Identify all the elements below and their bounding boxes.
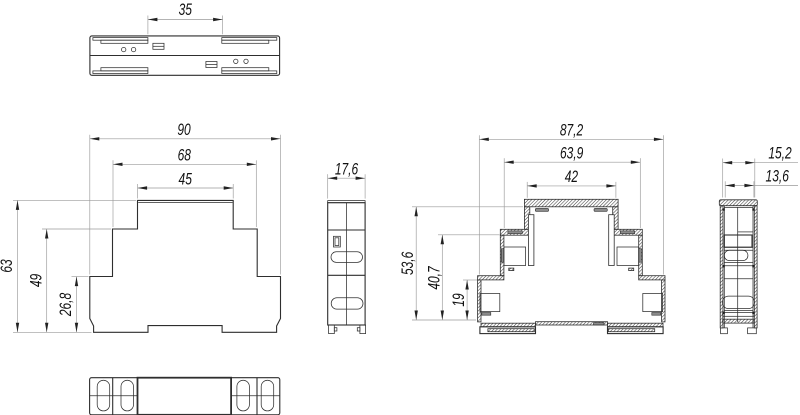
svg-text:40,7: 40,7: [426, 266, 444, 290]
svg-text:13,6: 13,6: [766, 168, 790, 186]
svg-text:35: 35: [179, 1, 193, 19]
svg-text:45: 45: [179, 171, 193, 189]
svg-text:63,9: 63,9: [560, 144, 583, 162]
svg-text:49: 49: [28, 274, 46, 287]
svg-text:19: 19: [450, 293, 468, 306]
svg-text:17,6: 17,6: [335, 161, 359, 179]
svg-text:42: 42: [565, 168, 578, 186]
svg-text:90: 90: [177, 121, 190, 139]
svg-text:53,6: 53,6: [399, 251, 417, 275]
svg-text:87,2: 87,2: [560, 122, 583, 140]
svg-text:63: 63: [0, 259, 17, 272]
svg-text:15,2: 15,2: [768, 145, 791, 163]
svg-text:68: 68: [178, 147, 192, 165]
svg-text:26,8: 26,8: [57, 292, 75, 317]
